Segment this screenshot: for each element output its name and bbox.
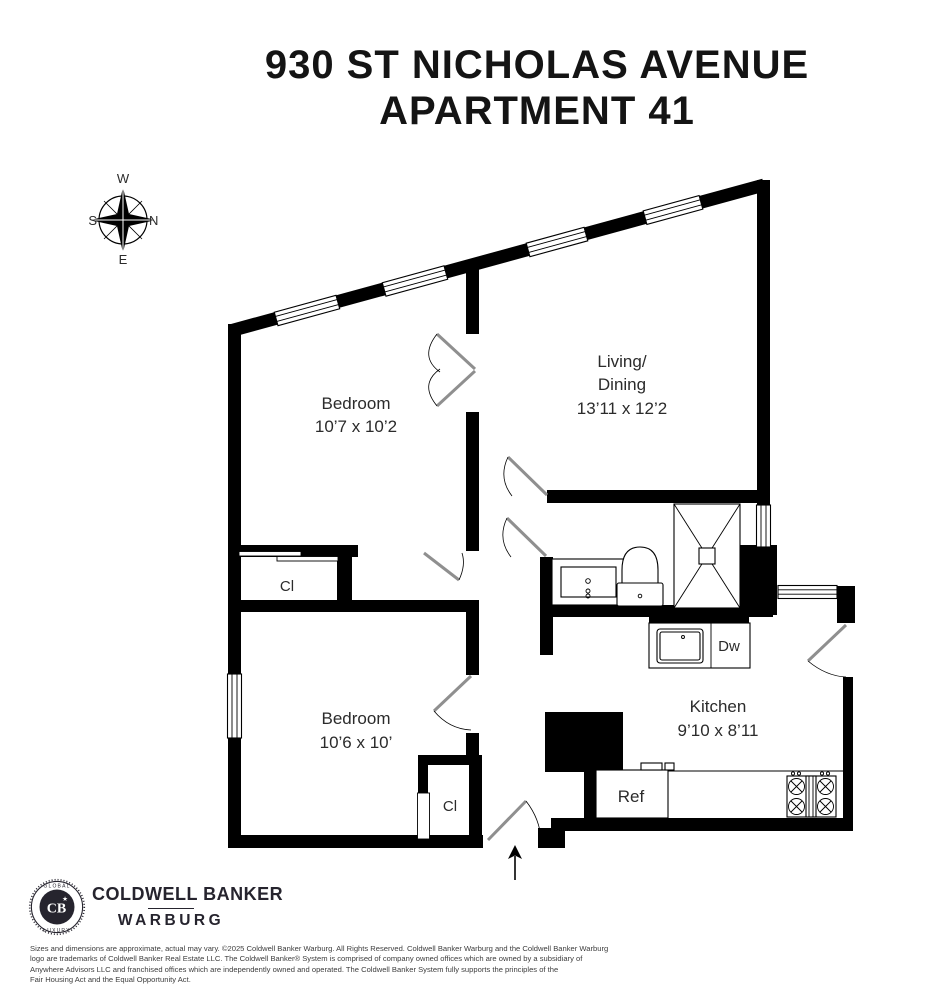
bedroom1-name: Bedroom xyxy=(322,394,391,413)
dishwasher-label: Dw xyxy=(718,638,740,655)
compass-south-label: S xyxy=(88,213,97,228)
window xyxy=(526,227,588,256)
entry-arrow-icon xyxy=(508,845,522,880)
badge-star-icon: ★ xyxy=(62,895,68,903)
floor-plan-svg: W S N E xyxy=(0,0,929,1000)
bathroom-sink xyxy=(552,559,625,605)
living-name-line1: Living/ xyxy=(597,352,646,371)
kitchen-name: Kitchen xyxy=(690,697,747,716)
floor-plan-page: 930 ST NICHOLAS AVENUE APARTMENT 41 W S … xyxy=(0,0,929,1000)
kitchen-dims: 9’10 x 8’11 xyxy=(678,721,759,740)
bedroom2-name: Bedroom xyxy=(322,709,391,728)
window xyxy=(643,196,703,225)
disclaimer-line: Sizes and dimensions are approximate, ac… xyxy=(30,944,690,954)
refrigerator-label: Ref xyxy=(618,787,645,806)
door xyxy=(434,676,471,730)
bedroom1-dims: 10’7 x 10’2 xyxy=(315,417,397,436)
closet2-label: Cl xyxy=(443,798,457,815)
window xyxy=(757,505,771,547)
window xyxy=(274,295,339,325)
bedroom2-dims: 10’6 x 10’ xyxy=(320,733,393,752)
window xyxy=(778,586,837,599)
compass-west-label: W xyxy=(117,171,130,186)
badge-monogram: CB xyxy=(47,902,66,917)
global-luxury-badge: GLOBAL CB ★ LUXURY xyxy=(27,877,87,937)
door xyxy=(504,457,547,496)
door xyxy=(808,625,846,677)
shower xyxy=(674,504,740,608)
badge-bottom-label: LUXURY xyxy=(43,928,70,934)
disclaimer-line: Anywhere Advisors LLC and franchised off… xyxy=(30,965,690,975)
compass-icon: W S N E xyxy=(88,171,158,267)
french-doors xyxy=(429,334,475,406)
toilet xyxy=(617,547,663,606)
stove xyxy=(787,772,836,817)
brand-subname: WARBURG xyxy=(92,912,250,930)
disclaimer-line: Fair Housing Act and the Equal Opportuni… xyxy=(30,975,690,985)
living-name-line2: Dining xyxy=(598,375,646,394)
brand-divider xyxy=(148,908,194,909)
entry-door xyxy=(488,801,541,840)
window xyxy=(228,674,242,738)
brand-wordmark: COLDWELL BANKER WARBURG xyxy=(92,884,250,930)
closet-door xyxy=(418,793,430,839)
window xyxy=(382,266,447,296)
refrigerator: Ref xyxy=(596,763,674,818)
living-dims: 13’11 x 12’2 xyxy=(577,399,667,418)
badge-top-label: GLOBAL xyxy=(43,884,70,890)
compass-north-label: N xyxy=(149,213,158,228)
legal-disclaimer: Sizes and dimensions are approximate, ac… xyxy=(30,944,690,986)
brand-name: COLDWELL BANKER xyxy=(92,884,250,905)
kitchen-sink-dishwasher-unit: Dw xyxy=(649,623,750,668)
bathroom-fixtures xyxy=(552,504,740,608)
closet1-label: Cl xyxy=(280,578,294,595)
compass-east-label: E xyxy=(119,252,128,267)
door xyxy=(503,518,546,557)
disclaimer-line: logo are trademarks of Coldwell Banker R… xyxy=(30,954,690,964)
door xyxy=(424,553,463,580)
